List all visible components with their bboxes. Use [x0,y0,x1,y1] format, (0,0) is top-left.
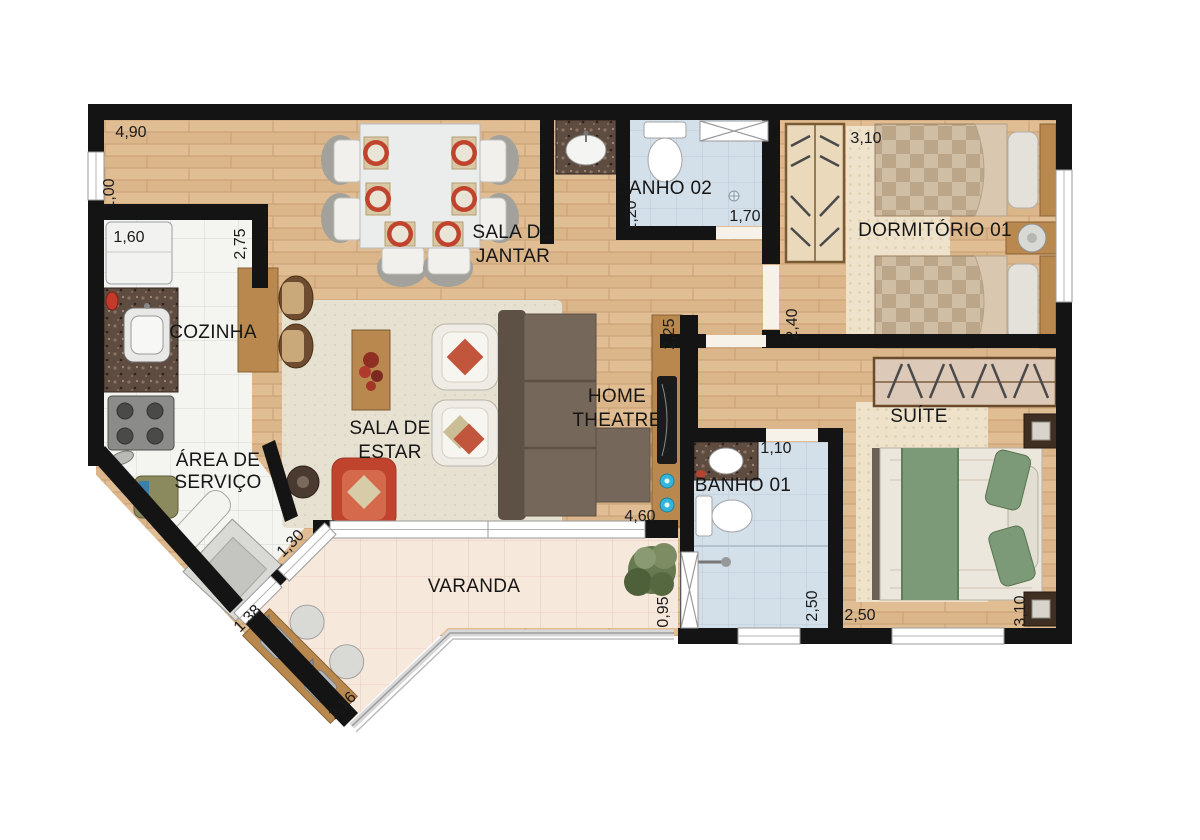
faucet-icon [144,303,150,309]
room-label-suite: SUÍTE [890,406,947,427]
dim-banho01-width: 1,10 [760,440,791,457]
stove [108,396,174,450]
floor-plan-page: COZINHA SALA DEJANTAR BANHO 02 DORMITÓRI… [0,0,1200,840]
toilet-bowl [712,500,752,532]
dim-suite-width: 2,50 [844,607,875,624]
armchair-red [332,458,396,528]
room-label-area-servico: ÁREA DESERVIÇO [174,450,261,493]
nightstand-dorm [1006,222,1058,254]
toilet-tank [696,496,712,536]
sofa-chaise [596,428,650,502]
dim-banho02-length: 1,70 [729,208,760,225]
hall-sink-counter [556,120,616,174]
single-bed-1 [875,124,1056,216]
round-speaker [287,466,319,498]
dim-dorm-depth: 2,40 [784,308,801,339]
sideboard [352,330,390,410]
dim-estar-width: 4,60 [624,508,655,525]
dim-suite-depth: 3,10 [1012,595,1029,626]
dim-dorm-width: 3,10 [850,130,881,147]
dim-banho01-depth: 2,50 [804,590,821,621]
dim-varanda-right: 0,95 [655,596,672,627]
room-label-banho01: BANHO 01 [695,475,791,496]
floor-plan: COZINHA SALA DEJANTAR BANHO 02 DORMITÓRI… [0,0,1200,840]
toilet-tank [644,122,686,138]
pillow [1008,132,1038,208]
dim-jantar-top: 4,90 [115,124,146,141]
dim-cozinha-width: 1,60 [113,229,144,246]
green-runner [902,448,958,600]
dim-banho02-width: 1,20 [623,200,640,231]
banho01-sink [709,448,743,474]
dim-cozinha-depth: 2,75 [232,228,249,259]
armchair-white-1 [432,324,498,390]
red-dish [106,292,118,310]
room-label-varanda: VARANDA [428,576,521,597]
shower-head [721,557,731,567]
toilet-bowl [648,138,682,182]
room-label-banho02: BANHO 02 [616,178,712,199]
suite-wardrobe [874,358,1056,406]
suite-furniture [872,358,1058,626]
dorm-wardrobe [786,124,844,262]
dim-ht-depth: 2,25 [661,318,678,349]
armchair-white-2 [432,400,498,466]
double-bed [872,448,1042,600]
sliding-door [330,521,645,538]
dim-jantar-left: 1,00 [101,178,118,209]
room-label-cozinha: COZINHA [169,322,257,343]
room-label-dormitorio01: DORMITÓRIO 01 [858,219,1012,241]
